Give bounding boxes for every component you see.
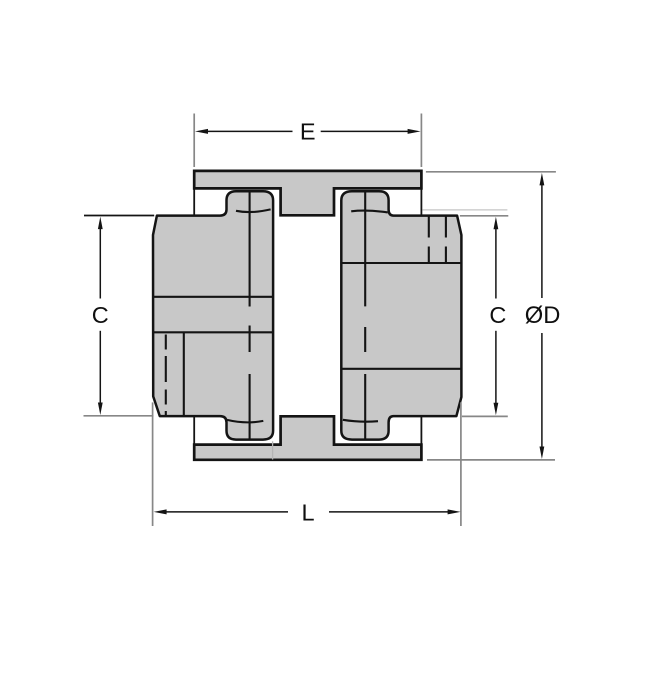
svg-text:C: C (489, 302, 506, 328)
svg-text:L: L (302, 499, 315, 525)
svg-text:E: E (300, 119, 316, 145)
svg-text:ØD: ØD (525, 303, 561, 329)
svg-text:C: C (92, 302, 109, 328)
